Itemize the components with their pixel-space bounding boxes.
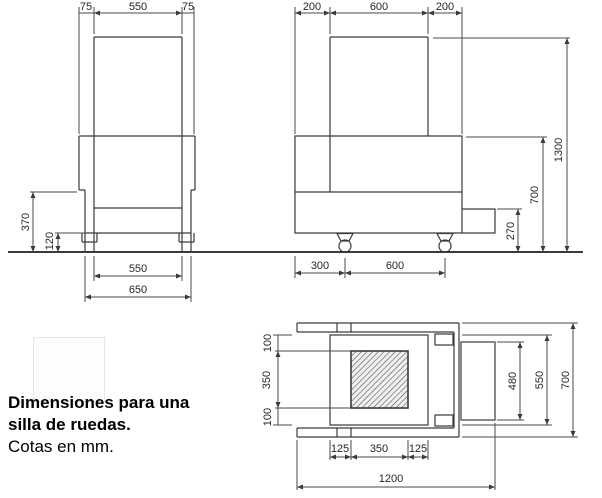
side-right-extensions: [433, 38, 570, 209]
dim-label-front-550-top: 550: [129, 1, 147, 13]
caster-wheel-front: [337, 234, 353, 253]
front-left-extensions: [30, 192, 85, 233]
top-view: 100 350 100 480 550 700 125 350 125 1200: [261, 323, 578, 490]
dim-label-100-top: 100: [262, 334, 274, 352]
dim-label-1300: 1300: [553, 138, 565, 162]
technical-drawing-page: 75 550 75 370 120 550 650: [0, 0, 602, 498]
side-top-extensions: [295, 7, 462, 134]
dim-label-600-bottom: 600: [386, 260, 404, 272]
topview-left-extensions: [273, 335, 351, 425]
side-view: 200 600 200 1300 700 270 300 600: [295, 1, 570, 278]
armrest-pad-bottom: [435, 415, 453, 426]
caption-title-line2: silla de ruedas.: [8, 414, 258, 436]
footplate: [461, 342, 495, 420]
caption-title-line1: Dimensiones para una: [8, 392, 258, 414]
caption-units-note: Cotas en mm.: [8, 436, 258, 458]
seat-cushion-hatched: [351, 351, 408, 408]
dim-label-200-left: 200: [303, 1, 321, 13]
dim-label-front-75-left: 75: [80, 1, 92, 13]
caster-wheel-rear: [437, 234, 453, 253]
dim-label-125-right: 125: [409, 443, 427, 455]
dim-label-550-bottom: 550: [129, 263, 147, 275]
dim-label-front-75-right: 75: [182, 1, 194, 13]
front-view: 75 550 75 370 120 550 650: [20, 1, 195, 302]
front-top-extensions: [79, 7, 194, 134]
dim-label-700-side: 700: [529, 186, 541, 204]
dim-label-350-bottom: 350: [370, 443, 388, 455]
armrest-pad-top: [435, 334, 453, 345]
dim-label-300: 300: [311, 260, 329, 272]
front-view-outline: [79, 37, 195, 252]
dim-label-1200: 1200: [379, 473, 403, 485]
side-view-outline: [295, 37, 495, 233]
dim-label-125-left: 125: [331, 443, 349, 455]
dim-label-550-right: 550: [534, 371, 546, 389]
dim-label-350-left: 350: [261, 371, 273, 389]
dim-label-100-bottom: 100: [262, 408, 274, 426]
dim-label-370: 370: [20, 213, 32, 231]
dim-label-600-top: 600: [370, 1, 388, 13]
dim-label-200-right: 200: [436, 1, 454, 13]
dim-label-270: 270: [505, 222, 517, 240]
caption: Dimensiones para una silla de ruedas. Co…: [8, 392, 258, 458]
dim-label-700-right: 700: [560, 371, 572, 389]
dim-label-650: 650: [129, 284, 147, 296]
dim-label-120: 120: [44, 232, 56, 250]
dim-label-480: 480: [507, 372, 519, 390]
